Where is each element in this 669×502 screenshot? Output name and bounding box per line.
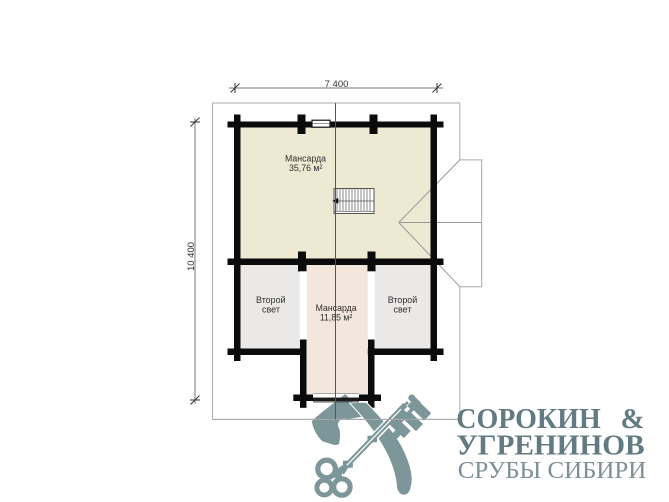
svg-text:11,85 м²: 11,85 м² [320,312,353,323]
svg-text:свет: свет [394,304,412,315]
svg-text:7 400: 7 400 [325,79,349,90]
svg-text:35,76 м²: 35,76 м² [289,163,323,174]
svg-text:СРУБЫ СИБИРИ: СРУБЫ СИБИРИ [458,458,646,484]
svg-text:10 400: 10 400 [186,242,197,271]
svg-text:свет: свет [262,304,280,315]
svg-text:УГРЕНИНОВ: УГРЕНИНОВ [456,430,644,462]
